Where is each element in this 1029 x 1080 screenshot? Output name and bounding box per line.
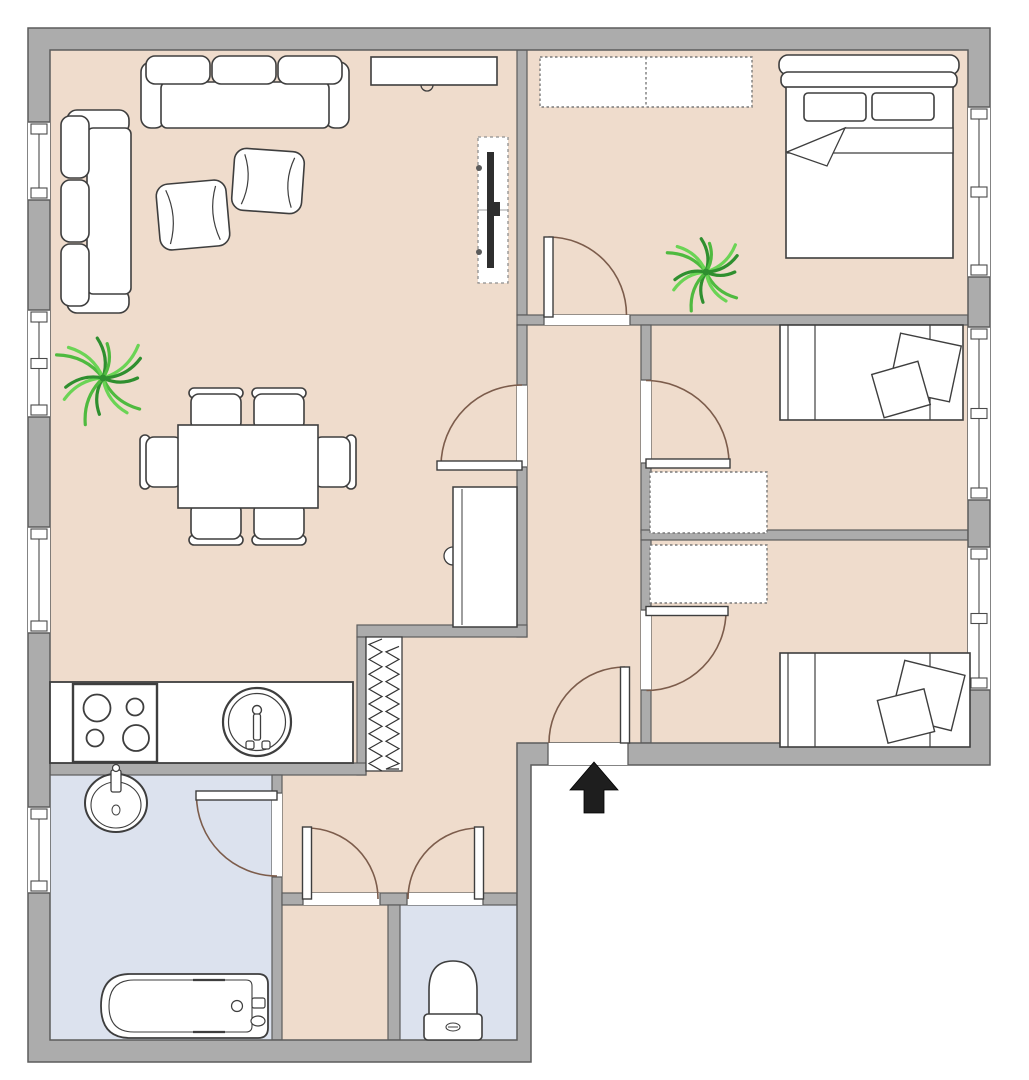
ellipse-shape: [251, 1016, 265, 1026]
wall-kitchen-stub: [357, 637, 366, 775]
wall-kitchen-bathroom: [50, 763, 366, 775]
circle-shape: [123, 725, 149, 751]
window-bedroom-2: [968, 327, 990, 500]
rrect-shape: [212, 56, 276, 84]
window-sill-block: [971, 678, 987, 688]
circle-shape: [232, 1001, 243, 1012]
window-living-3: [28, 527, 50, 633]
wardrobe-bedroom-1: [540, 57, 752, 107]
door-leaf: [437, 461, 522, 470]
door-gap: [544, 315, 630, 325]
door-gap: [407, 893, 483, 905]
floor-plan: [0, 0, 1029, 1080]
circle-shape: [127, 699, 144, 716]
window-bedroom-1: [968, 107, 990, 277]
window-living-1: [28, 122, 50, 200]
door-gap: [548, 743, 628, 765]
rrect-shape: [61, 180, 89, 242]
window-sill-block: [31, 188, 47, 198]
rect-shape: [494, 202, 500, 216]
wall-storage-wc: [388, 905, 400, 1040]
door-leaf: [646, 459, 730, 468]
stove: [73, 684, 157, 762]
wall-living-bedroom1: [517, 50, 527, 315]
rect-shape: [111, 770, 121, 792]
window-sill-block: [31, 621, 47, 631]
window-sill-block: [31, 881, 47, 891]
rrect-shape: [61, 244, 89, 306]
circle-shape: [253, 706, 262, 715]
circle-shape: [113, 765, 120, 772]
single-bed-3: [780, 653, 970, 747]
rrect-shape: [781, 72, 957, 88]
plant-center: [703, 269, 710, 276]
double-bed: [779, 55, 959, 258]
door-gap: [272, 793, 282, 877]
door-leaf: [475, 827, 484, 899]
wardrobe-bedroom-3: [650, 545, 767, 603]
rect-shape: [650, 472, 767, 533]
door-gap: [641, 610, 651, 690]
rect-shape: [178, 425, 318, 508]
rrect-shape: [146, 56, 210, 84]
window-sill-block: [971, 409, 987, 419]
path-shape: [429, 961, 477, 1016]
window-sill-block: [971, 549, 987, 559]
kitchen-sink: [223, 688, 291, 756]
window-sill-block: [971, 614, 987, 624]
wall-living-hall: [517, 325, 527, 637]
rrect-shape: [161, 82, 329, 128]
door-leaf: [544, 237, 553, 317]
window-sill-block: [971, 187, 987, 197]
radiator-body: [366, 637, 402, 771]
window-sill-block: [971, 265, 987, 275]
rrect-shape: [155, 179, 230, 251]
rrect-shape: [146, 437, 182, 487]
door-gap: [517, 385, 527, 467]
circle-shape: [87, 730, 104, 747]
rect-shape: [252, 998, 265, 1008]
rrect-shape: [804, 93, 866, 121]
rect-shape: [73, 684, 157, 762]
armchair-2: [231, 148, 305, 215]
window-sill-block: [971, 329, 987, 339]
door-gap: [641, 380, 651, 463]
door-gap: [303, 893, 380, 905]
rect-shape: [246, 741, 254, 749]
window-sill-block: [31, 809, 47, 819]
rect-shape: [262, 741, 270, 749]
window-sill-block: [31, 124, 47, 134]
sofa-side: [61, 110, 131, 313]
rect-shape: [650, 545, 767, 603]
window-bathroom: [28, 807, 50, 893]
armchair-1: [155, 179, 230, 251]
rrect-shape: [872, 93, 934, 120]
door-leaf: [646, 607, 728, 616]
toilet: [424, 961, 482, 1040]
path-shape: [109, 980, 252, 1032]
window-sill-block: [31, 312, 47, 322]
window-bedroom-3: [968, 547, 990, 690]
window-sill-block: [31, 529, 47, 539]
door-leaf: [621, 667, 630, 743]
hall-cabinet: [444, 487, 517, 627]
rrect-shape: [61, 116, 89, 178]
wardrobe-bedroom-2: [650, 472, 767, 533]
rect-shape: [371, 57, 497, 85]
sofa-large: [141, 56, 349, 128]
plant-center: [100, 375, 107, 382]
rect-shape: [254, 714, 261, 740]
rect-shape: [453, 487, 517, 627]
floor-plan-canvas: [0, 0, 1029, 1080]
circle-shape: [476, 165, 482, 171]
rrect-shape: [87, 128, 131, 294]
circle-shape: [476, 249, 482, 255]
radiator: [366, 637, 402, 771]
window-sill-block: [971, 488, 987, 498]
window-sill-block: [31, 405, 47, 415]
rect-shape: [487, 152, 494, 268]
circle-shape: [84, 695, 111, 722]
rrect-shape: [278, 56, 342, 84]
door-leaf: [303, 827, 312, 899]
window-living-2: [28, 310, 50, 417]
ellipse-shape: [112, 805, 120, 815]
bathtub: [101, 974, 268, 1038]
rrect-shape: [231, 148, 305, 215]
door-leaf: [196, 791, 277, 800]
window-sill-block: [31, 359, 47, 369]
tv-unit: [476, 137, 508, 283]
window-sill-block: [971, 109, 987, 119]
rrect-shape: [314, 437, 350, 487]
single-bed-2: [780, 325, 963, 420]
